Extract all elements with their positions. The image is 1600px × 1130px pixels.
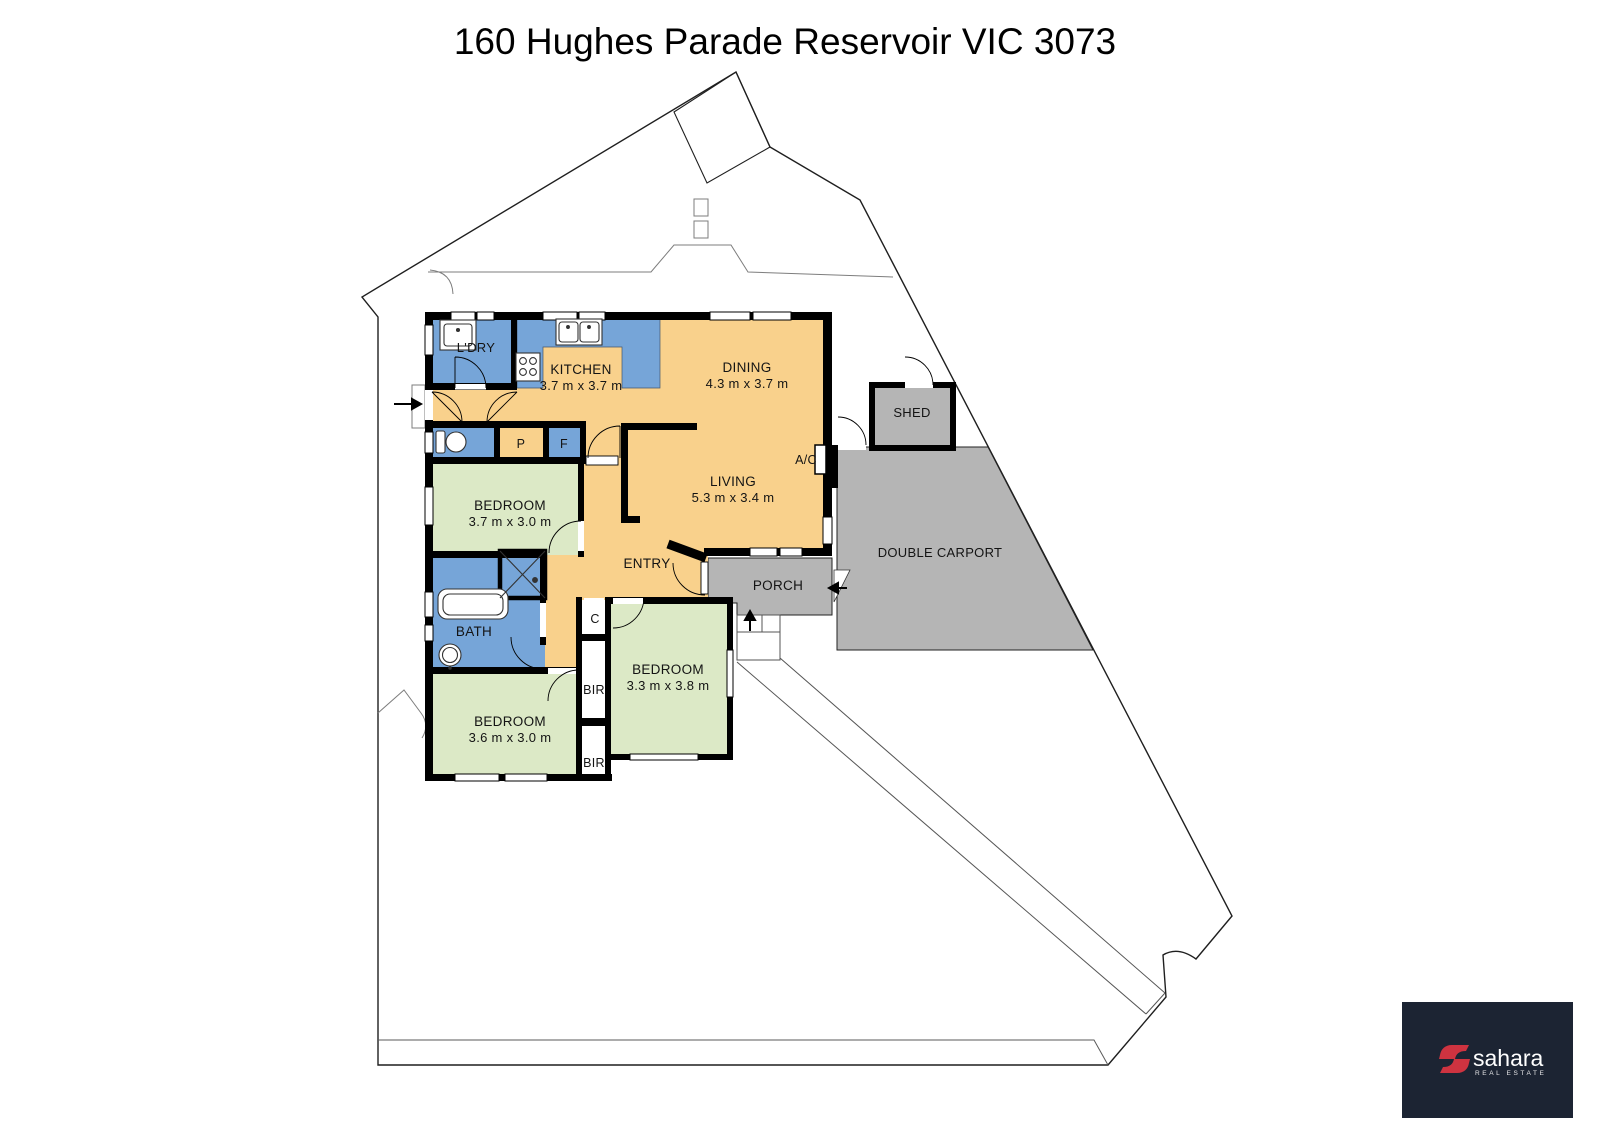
bottom-fence [378,1040,1108,1065]
cooktop [516,353,540,381]
toilet [436,431,466,453]
room-hall-lower [545,600,578,674]
label-ldry: L'DRY [457,340,495,355]
label-bir2: BIR [583,756,605,770]
label-carport: DOUBLE CARPORT [878,545,1003,560]
label-dining-dims: 4.3 m x 3.7 m [706,376,789,391]
label-bed2-dims: 3.6 m x 3.0 m [469,730,552,745]
rear-gate-arc [430,270,453,294]
label-entry: ENTRY [623,556,670,571]
label-pantry: P [517,437,526,451]
logo-brand: sahara [1473,1045,1544,1071]
label-bed3: BEDROOM [632,662,704,677]
agency-logo: sahara REAL ESTATE [1402,1002,1573,1118]
label-porch: PORCH [753,578,803,593]
label-shed: SHED [893,405,930,420]
label-dining: DINING [722,360,771,375]
label-bath: BATH [456,624,492,639]
side-gate [378,690,426,738]
boundary-shed-outline [674,72,770,183]
label-bed3-dims: 3.3 m x 3.8 m [627,678,710,693]
utility-box-2 [694,221,708,238]
bathtub [438,589,508,619]
label-living: LIVING [710,474,756,489]
backyard-fence [428,245,893,277]
label-living-dims: 5.3 m x 3.4 m [692,490,775,505]
logo-tagline: REAL ESTATE [1475,1070,1546,1077]
label-closet: C [590,612,599,626]
kitchen-sink [556,319,602,345]
front-path [737,632,780,660]
label-kitchen-dims: 3.7 m x 3.7 m [540,378,623,393]
label-bir1: BIR [583,683,605,697]
label-ac: A/C [795,453,817,467]
driveway-path [737,658,1165,1014]
label-bed2: BEDROOM [474,714,546,729]
utility-box-1 [694,199,708,216]
page-title: 160 Hughes Parade Reservoir VIC 3073 [454,21,1116,62]
label-kitchen: KITCHEN [550,362,611,377]
label-bed1: BEDROOM [474,498,546,513]
label-fridge: F [560,437,568,451]
label-bed1-dims: 3.7 m x 3.0 m [469,514,552,529]
porch-steps [737,615,780,632]
sahara-logo-icon [1439,1045,1470,1073]
room-bir-1 [579,643,608,718]
floorplan-page: 160 Hughes Parade Reservoir VIC 3073 [0,0,1600,1130]
